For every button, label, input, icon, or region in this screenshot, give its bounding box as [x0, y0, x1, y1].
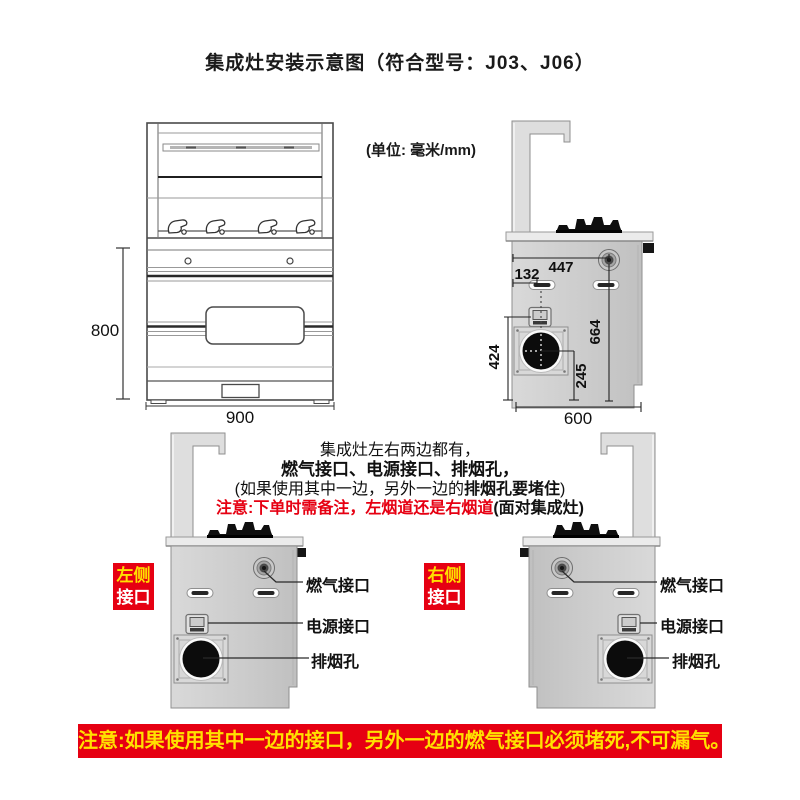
stove-side-view-mirrored	[520, 433, 660, 708]
vent-flap	[643, 243, 654, 253]
burner-icon	[556, 217, 622, 233]
handle	[206, 307, 304, 344]
side-view-diagram: 447 132 664 424 245 600	[480, 100, 690, 435]
chimney	[171, 433, 225, 545]
side-cooktop	[506, 232, 653, 241]
front-height-label: 800	[91, 321, 119, 340]
right-power-label: 电源接口	[660, 613, 724, 637]
dim-132: 132	[514, 266, 539, 283]
drawer	[222, 385, 259, 398]
power-outlet-icon	[529, 308, 551, 327]
front-cabinet-drawing	[147, 123, 333, 404]
stove-side-view	[166, 433, 306, 708]
dim-245: 245	[573, 363, 590, 388]
right-port-badge: 右侧接口	[424, 563, 465, 610]
right-exhaust-label: 排烟孔	[672, 648, 720, 672]
front-view-diagram: 800	[80, 105, 355, 430]
front-width-dimension: 900	[146, 402, 334, 427]
dim-664: 664	[587, 319, 604, 345]
gas-connector-icon	[254, 558, 275, 579]
slot-icon	[593, 281, 619, 290]
cooktop	[166, 537, 303, 546]
slot-icon	[253, 589, 279, 598]
right-gas-label: 燃气接口	[660, 572, 724, 596]
warning-banner: 注意:如果使用其中一边的接口，另外一边的燃气接口必须堵死,不可漏气。	[78, 724, 722, 758]
dim-424: 424	[486, 344, 503, 370]
left-port-badge: 左侧接口	[113, 563, 154, 610]
slot-icon	[187, 589, 213, 598]
side-chimney	[512, 121, 570, 240]
vent-flap	[298, 548, 307, 557]
front-height-dimension: 800	[91, 248, 130, 399]
page: 集成灶安装示意图（符合型号：J03、J06） (单位: 毫米/mm) 800	[0, 0, 800, 800]
burner-icon	[207, 522, 273, 538]
units-note: (单位: 毫米/mm)	[366, 139, 476, 160]
exhaust-hole-icon	[174, 635, 228, 683]
page-title: 集成灶安装示意图（符合型号：J03、J06）	[0, 48, 800, 75]
left-gas-label: 燃气接口	[306, 572, 370, 596]
dim-447: 447	[548, 259, 573, 276]
left-exhaust-label: 排烟孔	[311, 648, 359, 672]
power-outlet-icon	[186, 615, 208, 634]
left-power-label: 电源接口	[306, 613, 370, 637]
